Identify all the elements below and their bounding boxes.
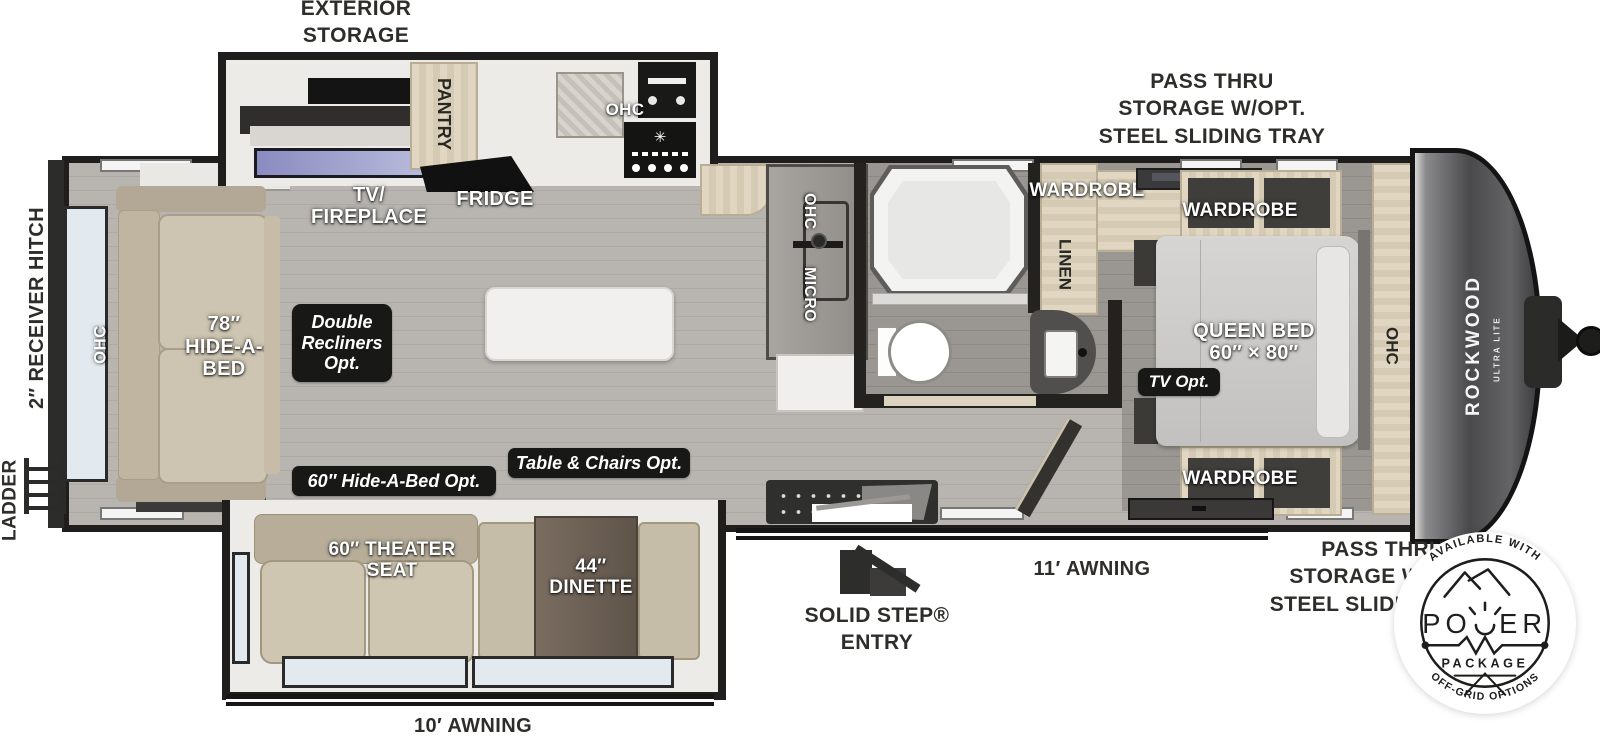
ohc-kitchen-label: OHC xyxy=(598,98,652,122)
rear-awning-label: 10′ AWNING xyxy=(394,714,552,738)
dinette-bench xyxy=(478,522,540,660)
ohc-cabinet-knob xyxy=(676,96,685,105)
solid-step-icon xyxy=(836,544,928,602)
stove-burner xyxy=(664,164,672,172)
fireplace-shelf xyxy=(250,126,420,146)
hide-a-bed-opt-badge: 60″ Hide-A-Bed Opt. xyxy=(292,466,496,496)
bath-door-threshold xyxy=(884,396,1036,406)
kitchen-island xyxy=(485,287,674,361)
vanity-faucet xyxy=(1078,348,1087,357)
range-stove: ✳ xyxy=(624,122,696,178)
vanity-sink xyxy=(1044,330,1078,378)
slide-window xyxy=(282,656,468,688)
coupler-knob xyxy=(1576,326,1600,356)
ladder-icon xyxy=(24,458,66,514)
micro-label: MICRO xyxy=(796,248,822,340)
ohc-cabinet-handle xyxy=(648,78,686,84)
counter-corner xyxy=(700,164,772,216)
counter-base-cabinet xyxy=(776,354,864,412)
exterior-storage-label: EXTERIOR STORAGE xyxy=(266,0,446,44)
tv-fireplace-screen xyxy=(254,148,426,178)
bedroom-divider-wall xyxy=(1108,300,1122,408)
exterior-storage-tv xyxy=(308,78,416,104)
stove-dash xyxy=(632,152,688,156)
tv-opt-badge: TV Opt. xyxy=(1138,368,1220,396)
shower-threshold xyxy=(872,293,1028,305)
dinette-bench xyxy=(638,522,700,660)
wardrobe-bottom-label: WARDROBE xyxy=(1168,466,1312,492)
nightstand xyxy=(1134,240,1158,286)
mountains-icon xyxy=(1445,569,1510,596)
pass-thru-hatch xyxy=(1128,498,1274,520)
theater-seat-label: 60″ THEATER SEAT xyxy=(316,534,468,586)
wardrobe-top-label: WARDROBE xyxy=(1168,198,1312,224)
ladder-label: LADDER xyxy=(0,436,22,564)
stove-burner xyxy=(680,164,688,172)
sofa-backrest xyxy=(118,210,160,480)
rear-awning-bar xyxy=(226,694,714,706)
shower-pan-inner xyxy=(888,181,1010,279)
bed-headboard xyxy=(1358,230,1370,450)
pass-thru-top-label: PASS THRU STORAGE W/OPT. STEEL SLIDING T… xyxy=(1080,70,1344,148)
sofa-armrest-top xyxy=(116,186,266,212)
front-ohc-label: OHC xyxy=(1378,314,1404,378)
sofa-dinette-slideout xyxy=(222,500,726,700)
dinette-label: 44″ DINETTE xyxy=(544,550,638,604)
badge-power-left: PO xyxy=(1422,608,1472,639)
hatch-handle xyxy=(1192,506,1206,511)
toilet xyxy=(876,318,952,382)
resistor-line-icon xyxy=(1423,637,1547,653)
badge-power-right: ER xyxy=(1499,608,1547,639)
receiver-hitch-label: 2″ RECEIVER HITCH xyxy=(22,194,52,422)
front-awning-bar xyxy=(736,528,1268,540)
brand-sub: ULTRA LITE xyxy=(1489,275,1505,423)
power-package-badge: AVAILABLE WITH PO ER PACKAGE OFF-GRID xyxy=(1394,532,1576,714)
window-bottom-corridor xyxy=(940,507,1024,520)
linen-label: LINEN xyxy=(1050,226,1078,302)
bath-left-wall xyxy=(854,163,866,406)
slide-side-window xyxy=(232,552,250,664)
front-awning-label: 11′ AWNING xyxy=(1016,556,1168,582)
fridge-label: FRIDGE xyxy=(442,186,548,212)
sun-icon xyxy=(1470,603,1500,634)
burner-star-icon: ✳ xyxy=(648,126,672,148)
front-cap: ROCKWOOD ULTRA LITE xyxy=(1410,148,1542,544)
double-recliners-badge: Double Recliners Opt. xyxy=(292,304,392,382)
table-chairs-opt-badge: Table & Chairs Opt. xyxy=(508,448,690,478)
stove-burner xyxy=(632,164,640,172)
hide-a-bed-label: 78″ HIDE-A- BED xyxy=(166,302,282,392)
tv-fireplace-label: TV/ FIREPLACE xyxy=(298,182,440,230)
propane-cover xyxy=(1524,296,1562,388)
slide-window xyxy=(472,656,674,688)
solid-step-entry-label: SOLID STEP® ENTRY xyxy=(790,602,964,656)
nightstand xyxy=(1134,398,1158,444)
pantry-label: PANTRY xyxy=(428,66,458,162)
rear-ohc-label: OHC xyxy=(84,310,116,380)
queen-bed-label: QUEEN BED 60″ × 80″ xyxy=(1162,314,1346,370)
floorplan-diagram: OHC 78″ HIDE-A- BED Double Recliners Opt… xyxy=(0,0,1600,738)
stove-burner xyxy=(648,164,656,172)
ohc-wall-label: OHC xyxy=(796,182,822,240)
brand-name: ROCKWOOD xyxy=(1459,217,1489,473)
badge-package-text: PACKAGE xyxy=(1442,656,1529,670)
hitch-assembly xyxy=(1524,292,1600,392)
shower xyxy=(870,165,1028,295)
